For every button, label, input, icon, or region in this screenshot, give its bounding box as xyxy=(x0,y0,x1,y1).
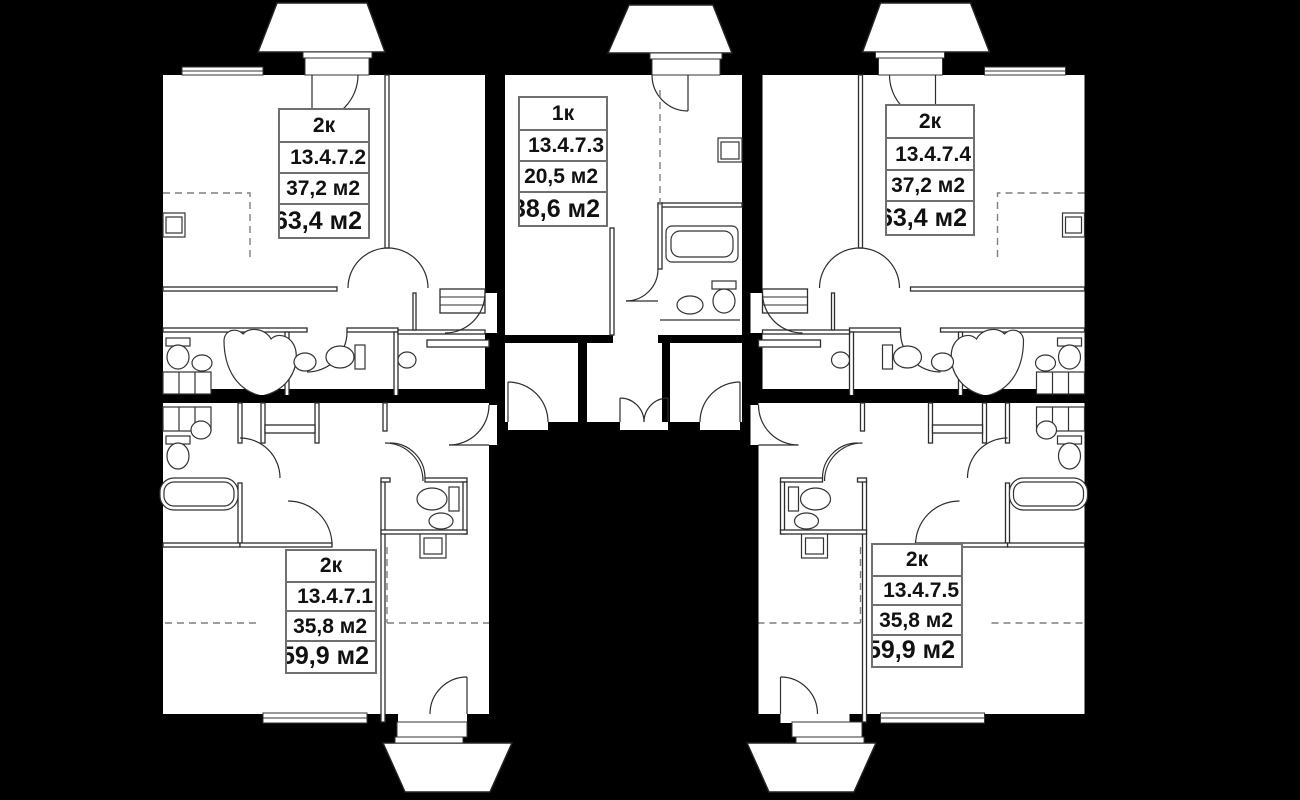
entry-opening xyxy=(489,405,497,445)
unit-rooms: 2к xyxy=(280,110,368,141)
unit-rooms: 2к xyxy=(887,106,973,137)
toilet xyxy=(166,338,190,369)
unit-card-13-4-7-1[interactable]: 2к 13.4.7.1 35,8 м2 59,9 м2 xyxy=(285,549,377,674)
entry-opening xyxy=(485,293,497,333)
unit-total-area: 38,6 м2 xyxy=(520,191,606,225)
unit-card-13-4-7-3[interactable]: 1к 13.4.7.3 20,5 м2 38,6 м2 xyxy=(518,96,608,227)
unit-total-area: 59,9 м2 xyxy=(287,640,375,672)
vent-shaft xyxy=(420,534,446,558)
unit-living-area: 37,2 м2 xyxy=(887,169,973,200)
unit-rooms: 1к xyxy=(520,98,606,129)
unit-total-area: 59,9 м2 xyxy=(873,634,961,666)
balcony-bottom-right xyxy=(747,722,876,792)
washer-cabinet xyxy=(163,372,211,394)
unit-living-area: 35,8 м2 xyxy=(873,604,961,634)
balcony-top-left xyxy=(258,3,385,75)
toilet xyxy=(326,345,365,369)
bathtub xyxy=(666,226,738,262)
balcony-top-right xyxy=(863,3,990,75)
sink xyxy=(191,421,211,439)
sink xyxy=(677,296,703,314)
toilet xyxy=(417,487,459,511)
unit-card-13-4-7-2[interactable]: 2к 13.4.7.2 37,2 м2 63,4 м2 xyxy=(278,108,370,239)
sink xyxy=(294,353,316,371)
vent-shaft xyxy=(718,138,742,162)
unit-code: 13.4.7.1 xyxy=(287,581,375,611)
balcony-top-middle xyxy=(608,5,732,75)
sink xyxy=(429,513,453,529)
bathtub xyxy=(160,478,238,510)
floor-plan-drawing xyxy=(0,0,1300,800)
window xyxy=(263,713,367,723)
unit-card-13-4-7-5[interactable]: 2к 13.4.7.5 35,8 м2 59,9 м2 xyxy=(871,543,963,668)
unit-living-area: 37,2 м2 xyxy=(280,172,368,203)
sink xyxy=(398,352,416,368)
unit-living-area: 20,5 м2 xyxy=(520,160,606,191)
unit-total-area: 63,4 м2 xyxy=(887,200,973,234)
toilet xyxy=(166,436,190,469)
floor-plan-page: 2к 13.4.7.2 37,2 м2 63,4 м2 1к 13.4.7.3 … xyxy=(0,0,1300,800)
unit-rooms: 2к xyxy=(873,545,961,575)
toilet xyxy=(712,281,736,313)
unit-total-area: 63,4 м2 xyxy=(280,203,368,237)
unit-card-13-4-7-4[interactable]: 2к 13.4.7.4 37,2 м2 63,4 м2 xyxy=(885,104,975,236)
unit-code: 13.4.7.4 xyxy=(887,137,973,168)
sink xyxy=(192,355,212,371)
hall-opening xyxy=(613,335,658,343)
common-corridor xyxy=(497,343,750,430)
unit-code: 13.4.7.5 xyxy=(873,575,961,605)
unit-living-area: 35,8 м2 xyxy=(287,610,375,640)
unit-rooms: 2к xyxy=(287,551,375,581)
vent-shaft xyxy=(163,213,185,237)
unit-code: 13.4.7.2 xyxy=(280,141,368,172)
balcony-bottom-left xyxy=(383,722,512,792)
unit-code: 13.4.7.3 xyxy=(520,129,606,160)
window xyxy=(182,67,263,75)
